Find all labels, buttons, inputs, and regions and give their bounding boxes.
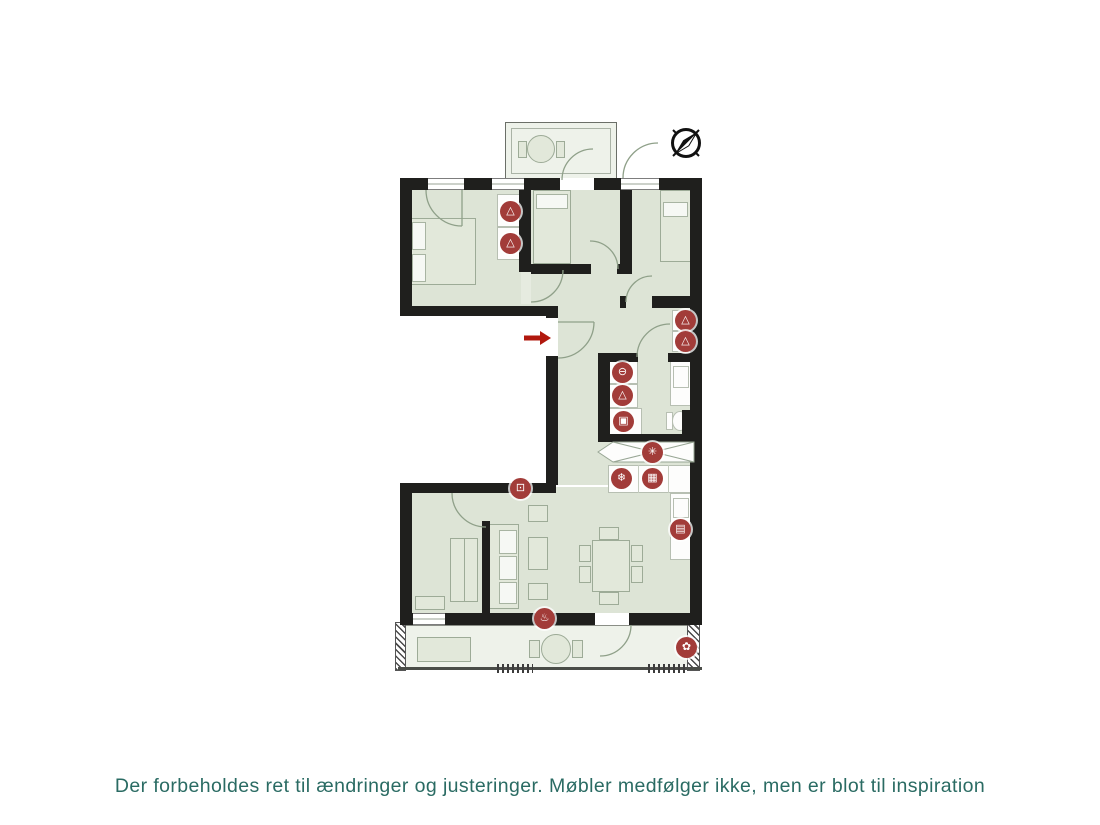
door-arc-bottom-balcony bbox=[600, 625, 631, 656]
tv-icon: ⊡ bbox=[510, 478, 531, 499]
door-arc-bedroom1 bbox=[531, 270, 563, 302]
door-arc-entrance bbox=[558, 322, 594, 358]
door-arc-bedroom3 bbox=[626, 276, 652, 302]
wardrobe-icon: △ bbox=[500, 201, 521, 222]
wardrobe-icon: △ bbox=[675, 331, 696, 352]
door-arc-bedroom2 bbox=[590, 241, 618, 269]
wardrobe-icon: △ bbox=[500, 233, 521, 254]
outdoor-tap-icon: ✿ bbox=[676, 637, 697, 658]
fridge-icon: ❄ bbox=[611, 468, 632, 489]
window-swing-arc bbox=[426, 190, 462, 226]
washing-machine-icon: ⊖ bbox=[612, 362, 633, 383]
door-arc-bathroom bbox=[637, 324, 670, 357]
floor-plan: △ △ △ △ ⊖ △ ▣ ✳ ❄ ▦ ▤ ⊡ ♨ ✿ Der forbehol… bbox=[0, 0, 1100, 825]
compass-icon bbox=[673, 130, 700, 157]
dryer-icon: ▣ bbox=[613, 411, 634, 432]
entrance-arrow bbox=[524, 331, 551, 345]
window-swing-arc bbox=[623, 143, 658, 178]
door-arc-top-balcony bbox=[562, 149, 593, 180]
door-arc-closet bbox=[452, 493, 486, 527]
appliance-icon: ▤ bbox=[670, 519, 691, 540]
oven-icon: ▦ bbox=[642, 468, 663, 489]
wardrobe-icon: △ bbox=[675, 310, 696, 331]
heating-icon: ♨ bbox=[534, 608, 555, 629]
wardrobe-icon: △ bbox=[612, 385, 633, 406]
ventilation-icon: ✳ bbox=[642, 442, 663, 463]
plan-linework bbox=[0, 0, 1100, 825]
